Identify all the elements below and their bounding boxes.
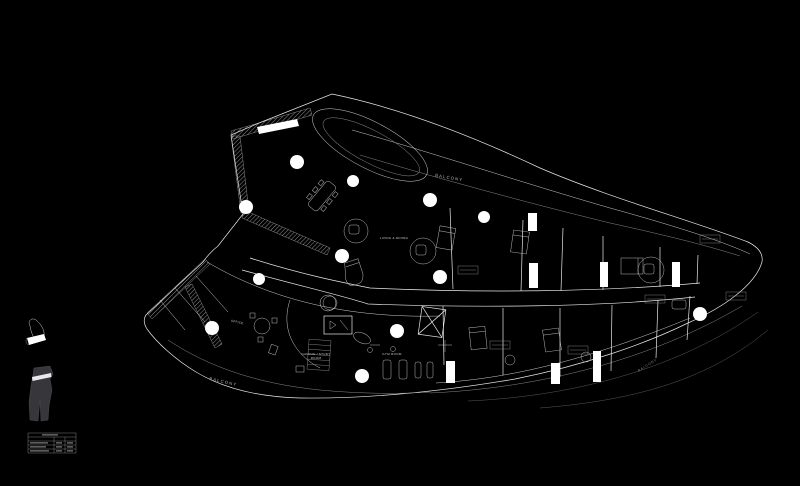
key-plan [26, 319, 76, 453]
shoe-icon [26, 319, 46, 345]
oval-pool [303, 95, 438, 196]
floor-plan-sheet: BALCONY BALCONY BALCONY LIVING & DINING … [0, 0, 800, 486]
living-dining-label: LIVING & DINING [380, 236, 409, 240]
interior-walls [160, 208, 700, 383]
office-label: OFFICE [231, 319, 244, 326]
balcony-right-label: BALCONY [637, 358, 658, 373]
gym-equipment [368, 340, 453, 379]
room-tags [458, 235, 746, 354]
area-table [28, 433, 76, 453]
keyplan-silhouette [29, 366, 53, 421]
media-box [324, 316, 352, 334]
column-dots [205, 155, 707, 383]
hatched-walls [147, 108, 330, 348]
gaming-study-label-line2: ROOM [311, 356, 322, 360]
gym-room-label: GYM ROOM [382, 352, 402, 356]
balcony-bottom-left-label: BALCONY [209, 376, 238, 387]
stair-x [418, 306, 446, 337]
furniture [250, 177, 686, 379]
floor-plan-drawing: BALCONY BALCONY BALCONY LIVING & DINING … [0, 0, 800, 486]
